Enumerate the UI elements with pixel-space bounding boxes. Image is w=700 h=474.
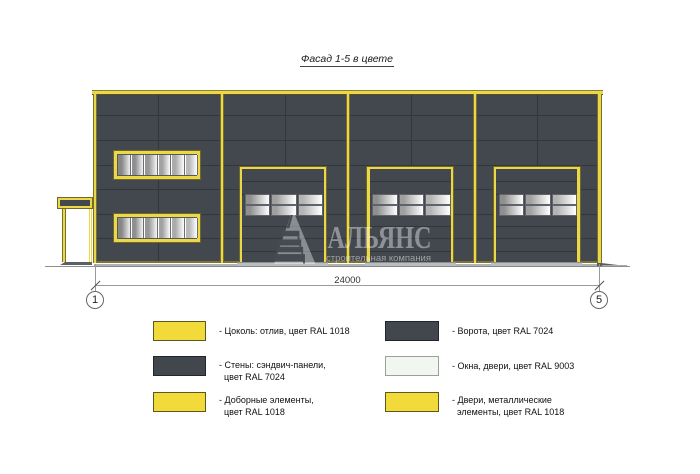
svg-text:АЛЬЯНС: АЛЬЯНС xyxy=(328,219,432,255)
svg-text:строительная компания: строительная компания xyxy=(326,253,431,263)
